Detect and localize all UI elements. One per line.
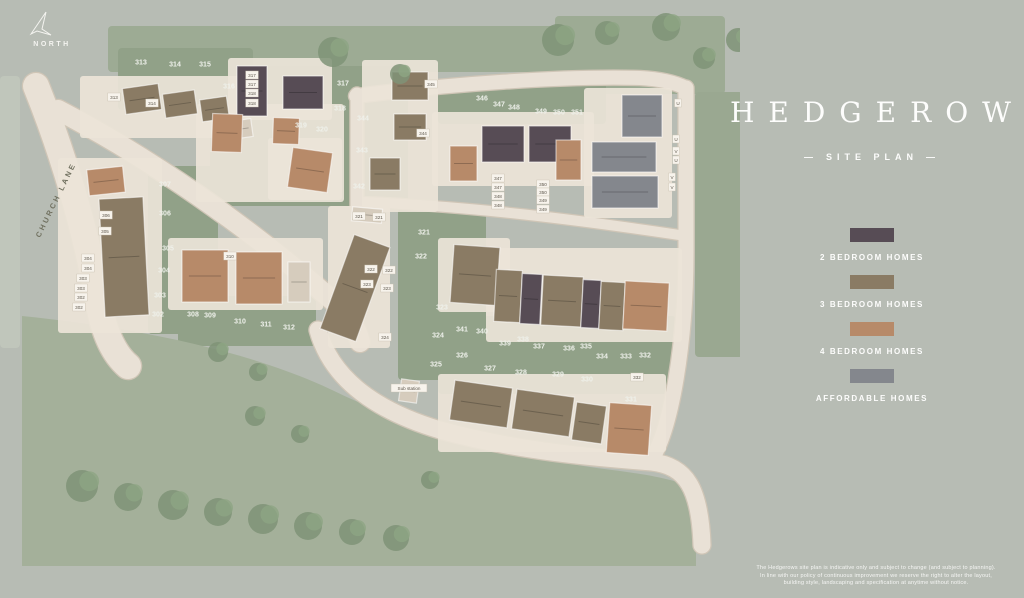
box-label: 321 (355, 214, 363, 219)
tree-highlight (350, 520, 366, 536)
plot-label: 339 (499, 340, 511, 347)
tree-highlight (306, 513, 323, 530)
subtitle-label: SITE PLAN (826, 152, 918, 162)
subtitle-dash-left: — (804, 152, 818, 162)
plot-label: 302 (152, 311, 164, 318)
plot-label: 340 (476, 328, 488, 335)
tree-highlight (664, 14, 681, 31)
plot-label: 312 (283, 324, 295, 331)
box-label: 317 (248, 82, 256, 87)
box-label: 350 (539, 190, 547, 195)
tree-highlight (605, 22, 620, 37)
box-label: 323 (363, 282, 371, 287)
plot-label: 343 (356, 147, 368, 154)
tree-highlight (79, 471, 99, 491)
tree-highlight (702, 48, 716, 62)
plot-label: 321 (418, 229, 430, 236)
box-label: 323 (383, 286, 391, 291)
legend-label-2bed: 2 BEDROOM HOMES (730, 253, 1014, 262)
roof-ridge (277, 131, 295, 132)
tree-highlight (260, 505, 279, 524)
legend: 2 BEDROOM HOMES 3 BEDROOM HOMES 4 BEDROO… (730, 228, 1014, 416)
box-label: 305 (101, 229, 109, 234)
box-label: 318 (248, 101, 256, 106)
disclaimer-line-1: The Hedgerows site plan is indicative on… (738, 565, 1014, 573)
box-label: 322 (367, 267, 375, 272)
tree-highlight (216, 499, 233, 516)
plot-label: 323 (436, 304, 448, 311)
north-indicator: NORTH (22, 8, 82, 48)
plot-label: 319 (295, 122, 307, 129)
plot-label: 325 (430, 361, 442, 368)
box-label: 347 (494, 176, 502, 181)
legend-item-3bed: 3 BEDROOM HOMES (730, 275, 1014, 309)
box-label: 322 (385, 268, 393, 273)
development-title: HEDGEROWS (730, 96, 1014, 129)
plot-label: 346 (476, 95, 488, 102)
plot-label: 316 (223, 83, 235, 90)
north-label: NORTH (22, 41, 82, 48)
tree-highlight (216, 343, 228, 355)
legend-item-affordable: AFFORDABLE HOMES (730, 369, 1014, 403)
legend-label-4bed: 4 BEDROOM HOMES (730, 347, 1014, 356)
plot-label: 335 (580, 343, 592, 350)
disclaimer-line-3: building style, landscaping and specific… (738, 580, 1014, 588)
box-label: 347 (494, 185, 502, 190)
box-label: 349 (539, 207, 547, 212)
plot-label: 349 (535, 108, 547, 115)
plot-label: 306 (159, 210, 171, 217)
plot-label: 318 (334, 105, 346, 112)
plot-label: 314 (169, 61, 181, 68)
tree-highlight (428, 472, 439, 483)
plot-label: 304 (158, 267, 170, 274)
legend-swatch-2bed (850, 228, 894, 242)
box-label: Sub station (398, 386, 421, 391)
tree-highlight (330, 38, 349, 57)
info-panel: HEDGEROWS —SITE PLAN— 2 BEDROOM HOMES 3 … (730, 0, 1014, 598)
plot-label: 303 (154, 292, 166, 299)
box-label: 321 (375, 215, 383, 220)
plot-label: 334 (596, 353, 608, 360)
box-label: 350 (539, 182, 547, 187)
box-label: 332 (633, 375, 641, 380)
plot-label: 311 (260, 321, 271, 328)
box-label: U (674, 158, 677, 163)
page-canvas: 3133143153163173183193203443433423073063… (0, 0, 1024, 598)
green-area (0, 76, 20, 348)
legend-item-2bed: 2 BEDROOM HOMES (730, 228, 1014, 262)
subtitle-dash-right: — (926, 152, 940, 162)
plot-label: 351 (571, 109, 583, 116)
tree-highlight (555, 25, 575, 45)
box-label: 348 (494, 194, 502, 199)
legend-label-3bed: 3 BEDROOM HOMES (730, 300, 1014, 309)
plot-label: 307 (159, 181, 171, 188)
plot-label: 344 (357, 115, 369, 122)
plot-label: 347 (493, 101, 505, 108)
plot-label: 350 (553, 109, 565, 116)
box-label: 313 (110, 95, 118, 100)
tree-highlight (394, 526, 410, 542)
tree-highlight (398, 65, 410, 77)
plot-label: 336 (563, 345, 575, 352)
site-plan-subtitle: —SITE PLAN— (730, 152, 1014, 162)
site-plan-map: 3133143153163173183193203443433423073063… (0, 0, 740, 598)
box-label: 348 (494, 203, 502, 208)
box-label: U (674, 137, 677, 142)
plot-label: 320 (316, 126, 328, 133)
box-label: 304 (84, 266, 92, 271)
plot-label: 309 (204, 312, 216, 319)
plot-label: 348 (508, 104, 520, 111)
box-label: 303 (77, 286, 85, 291)
plot-label: 333 (620, 353, 632, 360)
plot-label: 328 (515, 369, 527, 376)
legend-swatch-affordable (850, 369, 894, 383)
plot-label: 305 (162, 245, 174, 252)
plot-label: 341 (456, 326, 468, 333)
box-label: 344 (419, 131, 427, 136)
legend-swatch-4bed (850, 322, 894, 336)
plot-label: 327 (484, 365, 496, 372)
box-label: 317 (248, 73, 256, 78)
box-label: 310 (226, 254, 234, 259)
north-arrow-icon (22, 8, 56, 38)
disclaimer-line-2: In line with our policy of continuous im… (738, 573, 1014, 581)
box-label: 314 (148, 101, 156, 106)
legend-label-affordable: AFFORDABLE HOMES (730, 394, 1014, 403)
box-label: 345 (427, 82, 435, 87)
disclaimer: The Hedgerows site plan is indicative on… (738, 565, 1014, 588)
plot-label: 331 (625, 396, 637, 403)
plot-label: 338 (517, 336, 529, 343)
plot-label: 322 (415, 253, 427, 260)
box-label: 302 (75, 305, 83, 310)
plot-label: 337 (533, 343, 545, 350)
plot-label: 324 (432, 332, 444, 339)
box-label: 302 (77, 295, 85, 300)
legend-swatch-3bed (850, 275, 894, 289)
roof-ridge (585, 304, 598, 305)
plot-label: 342 (353, 183, 365, 190)
plot-label: 313 (135, 59, 147, 66)
tree-highlight (126, 484, 143, 501)
plot-label: 329 (552, 371, 564, 378)
plot-label: 310 (234, 318, 246, 325)
plot-label: 308 (187, 311, 199, 318)
plot-label: 332 (639, 352, 651, 359)
box-label: 349 (539, 198, 547, 203)
box-label: 303 (79, 276, 87, 281)
box-label: 324 (381, 335, 389, 340)
legend-item-4bed: 4 BEDROOM HOMES (730, 322, 1014, 356)
tree-highlight (298, 426, 309, 437)
plot-label: 326 (456, 352, 468, 359)
tree-highlight (170, 491, 189, 510)
plot-label: 330 (581, 376, 593, 383)
box-label: 304 (84, 256, 92, 261)
tree-highlight (253, 407, 265, 419)
box-label: 318 (248, 91, 256, 96)
box-label: U (676, 101, 679, 106)
plot-label: 315 (199, 61, 211, 68)
box-label: 306 (102, 213, 110, 218)
plot-label: 317 (337, 80, 349, 87)
tree-highlight (256, 364, 267, 375)
